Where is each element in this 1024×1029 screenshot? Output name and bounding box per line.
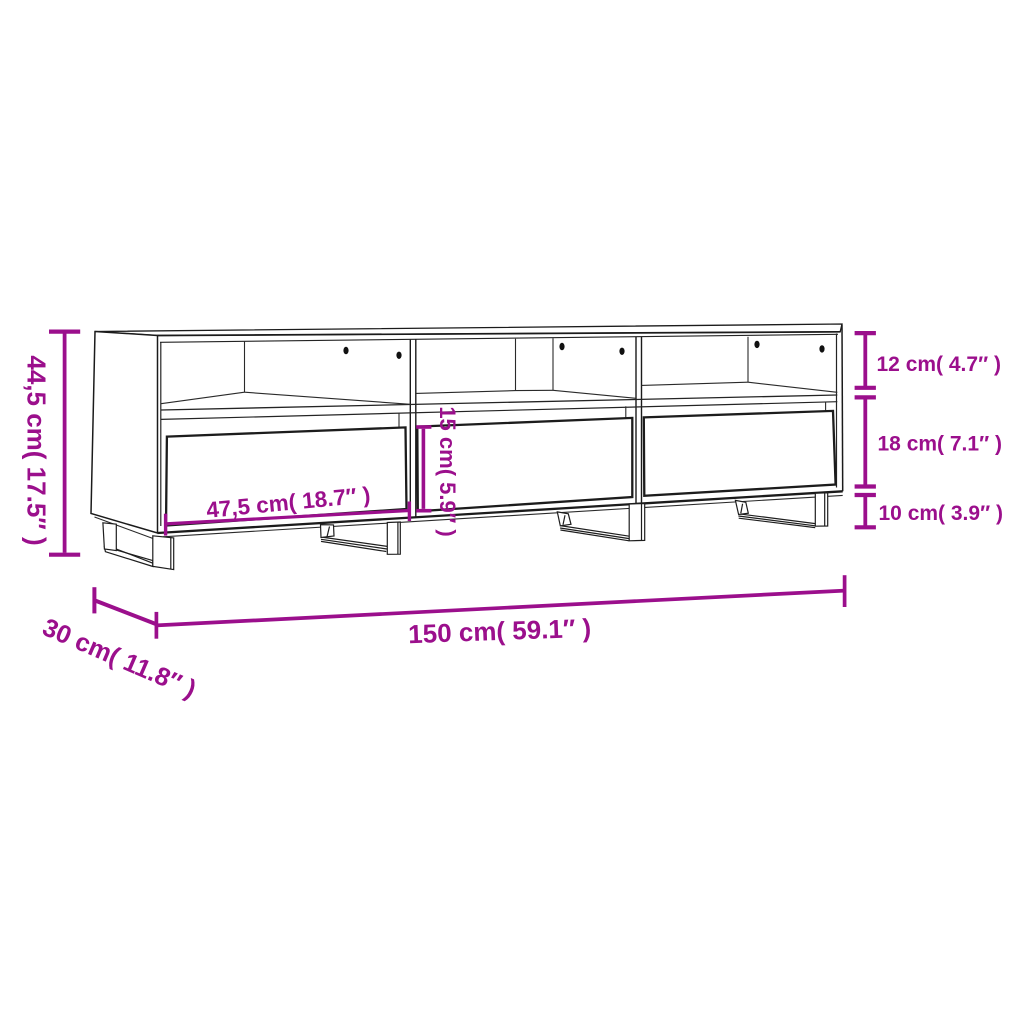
svg-text:18 cm( 7.1″ ): 18 cm( 7.1″ ) bbox=[878, 433, 1002, 456]
svg-text:12 cm( 4.7″ ): 12 cm( 4.7″ ) bbox=[877, 353, 1001, 376]
svg-text:15 cm( 5.9″ ): 15 cm( 5.9″ ) bbox=[435, 406, 460, 536]
svg-text:150 cm( 59.1″ ): 150 cm( 59.1″ ) bbox=[408, 613, 592, 649]
svg-text:10 cm( 3.9″ ): 10 cm( 3.9″ ) bbox=[879, 502, 1003, 525]
svg-text:44,5 cm( 17.5″ ): 44,5 cm( 17.5″ ) bbox=[22, 355, 52, 545]
